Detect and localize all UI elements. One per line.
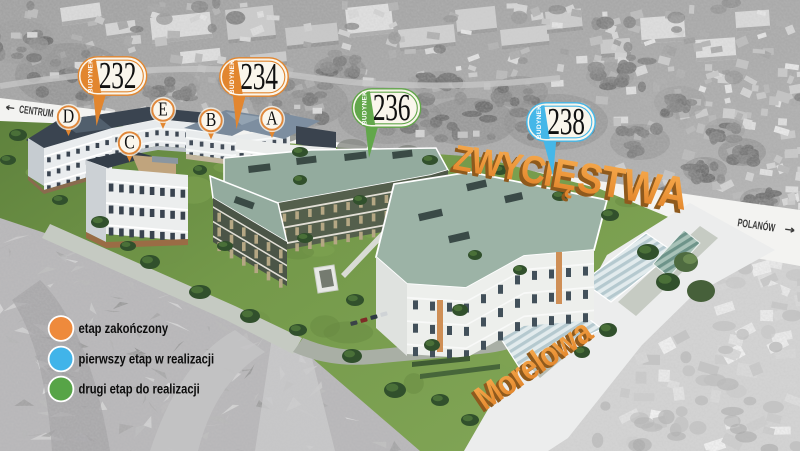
svg-text:BUDYNEK: BUDYNEK [536, 105, 543, 139]
svg-text:B: B [206, 108, 217, 130]
svg-text:drugi etap do realizacji: drugi etap do realizacji [79, 382, 200, 397]
svg-text:BUDYNEK: BUDYNEK [229, 60, 236, 94]
svg-text:E: E [158, 98, 168, 120]
svg-text:D: D [63, 105, 74, 127]
svg-text:BUDYNEK: BUDYNEK [361, 91, 368, 125]
svg-text:etap zakończony: etap zakończony [79, 321, 169, 336]
svg-text:A: A [266, 107, 277, 129]
svg-text:pierwszy etap w realizacji: pierwszy etap w realizacji [79, 352, 215, 367]
svg-text:238: 238 [547, 100, 584, 142]
svg-text:C: C [124, 131, 135, 153]
svg-text:232: 232 [99, 54, 136, 96]
svg-text:234: 234 [240, 55, 277, 97]
svg-text:BUDYNEK: BUDYNEK [87, 59, 94, 93]
svg-text:236: 236 [373, 86, 410, 128]
